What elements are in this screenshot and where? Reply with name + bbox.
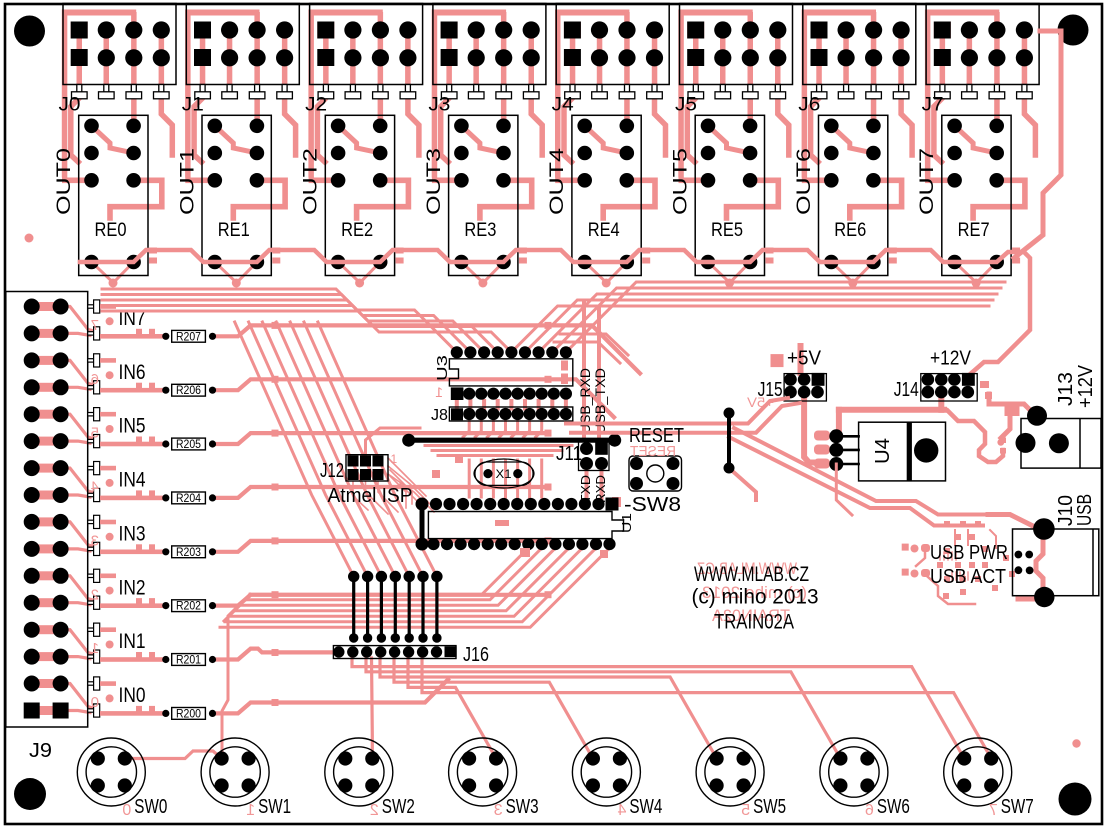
svg-text:J9: J9 xyxy=(29,740,52,762)
svg-text:R200: R200 xyxy=(176,708,201,720)
svg-text:X1: X1 xyxy=(496,467,512,481)
svg-text:RE5: RE5 xyxy=(711,220,743,241)
svg-text:R205: R205 xyxy=(176,439,201,451)
svg-text:J6: J6 xyxy=(798,95,820,116)
svg-text:J13: J13 xyxy=(1055,372,1077,406)
svg-text:2: 2 xyxy=(370,802,379,819)
svg-text:6: 6 xyxy=(865,802,874,819)
svg-text:Atmel ISP: Atmel ISP xyxy=(328,485,413,507)
svg-text:IN5: IN5 xyxy=(119,415,146,438)
svg-text:+12V: +12V xyxy=(930,348,972,370)
svg-text:J3: J3 xyxy=(428,95,450,116)
svg-text:J8: J8 xyxy=(431,407,448,424)
svg-text:6: 6 xyxy=(91,371,99,388)
svg-text:5: 5 xyxy=(91,425,99,442)
svg-text:U4: U4 xyxy=(872,438,894,464)
svg-text:TRAIN02A: TRAIN02A xyxy=(714,611,794,634)
svg-text:OUT3: OUT3 xyxy=(424,148,445,215)
svg-text:OUT1: OUT1 xyxy=(177,148,198,215)
svg-text:IN6: IN6 xyxy=(119,361,146,384)
svg-text:USB PWR: USB PWR xyxy=(930,542,1008,564)
svg-text:R206: R206 xyxy=(176,385,201,397)
svg-text:2: 2 xyxy=(91,586,99,603)
svg-text:J7: J7 xyxy=(922,95,944,116)
svg-text:J0: J0 xyxy=(59,95,81,116)
svg-text:-SW8: -SW8 xyxy=(624,494,681,516)
svg-text:OUT4: OUT4 xyxy=(547,147,568,215)
svg-text:5: 5 xyxy=(741,802,750,819)
svg-text:SW6: SW6 xyxy=(877,796,910,818)
svg-text:R201: R201 xyxy=(176,655,201,667)
svg-text:+5V: +5V xyxy=(787,348,822,370)
svg-text:RE1: RE1 xyxy=(218,220,250,241)
svg-text:IN3: IN3 xyxy=(119,523,146,546)
svg-text:IN1: IN1 xyxy=(119,630,146,653)
svg-text:1: 1 xyxy=(391,452,398,466)
svg-text:R203: R203 xyxy=(176,547,201,559)
svg-text:OUT7: OUT7 xyxy=(917,148,938,215)
svg-text:J16: J16 xyxy=(463,644,489,666)
svg-text:OUT5: OUT5 xyxy=(671,148,692,215)
svg-text:RE2: RE2 xyxy=(341,220,373,241)
svg-text:SW4: SW4 xyxy=(629,796,662,818)
svg-text:J14: J14 xyxy=(894,379,919,401)
svg-text:RESET: RESET xyxy=(630,443,676,460)
svg-text:1: 1 xyxy=(246,802,255,819)
svg-text:IN4: IN4 xyxy=(119,469,146,492)
svg-text:J12: J12 xyxy=(320,460,344,482)
svg-text:U1: U1 xyxy=(619,513,634,533)
svg-text:3: 3 xyxy=(91,532,99,549)
svg-text:SW1: SW1 xyxy=(258,796,291,818)
svg-text:R202: R202 xyxy=(176,601,201,613)
svg-text:SW2: SW2 xyxy=(382,796,415,818)
svg-text:IN0: IN0 xyxy=(119,684,146,707)
svg-text:7: 7 xyxy=(91,317,99,334)
svg-text:R204: R204 xyxy=(176,493,202,505)
svg-text:USB: USB xyxy=(1074,494,1096,526)
svg-text:J4: J4 xyxy=(552,95,574,116)
svg-text:3: 3 xyxy=(494,802,503,819)
svg-text:SW0: SW0 xyxy=(134,796,167,818)
svg-text:R207: R207 xyxy=(176,331,201,343)
svg-text:SW3: SW3 xyxy=(506,796,539,818)
svg-text:IN2: IN2 xyxy=(119,576,146,599)
svg-text:U3: U3 xyxy=(434,355,451,381)
svg-text:RE4: RE4 xyxy=(588,220,620,241)
svg-text:RE0: RE0 xyxy=(95,220,127,241)
svg-text:0: 0 xyxy=(122,802,131,819)
svg-text:7: 7 xyxy=(989,802,998,819)
svg-text:SW5: SW5 xyxy=(753,796,786,818)
svg-text:1: 1 xyxy=(435,384,443,400)
svg-text:OUT2: OUT2 xyxy=(301,148,322,215)
svg-text:+12V: +12V xyxy=(1075,364,1097,408)
svg-text:4: 4 xyxy=(617,802,626,819)
svg-text:J5: J5 xyxy=(675,95,697,116)
svg-text:RE6: RE6 xyxy=(834,220,866,241)
svg-text:RE3: RE3 xyxy=(464,220,496,241)
svg-text:OUT6: OUT6 xyxy=(794,148,815,215)
svg-text:SW7: SW7 xyxy=(1001,796,1034,818)
svg-text:J1: J1 xyxy=(182,95,204,116)
svg-text:0: 0 xyxy=(91,694,99,711)
svg-text:J2: J2 xyxy=(305,95,327,116)
svg-text:4: 4 xyxy=(91,479,99,496)
svg-text:OUT0: OUT0 xyxy=(54,148,75,215)
svg-text:RE7: RE7 xyxy=(958,220,990,241)
svg-text:1: 1 xyxy=(91,640,99,657)
svg-text:J11: J11 xyxy=(556,443,582,465)
svg-text:USB ACT: USB ACT xyxy=(930,566,1006,588)
